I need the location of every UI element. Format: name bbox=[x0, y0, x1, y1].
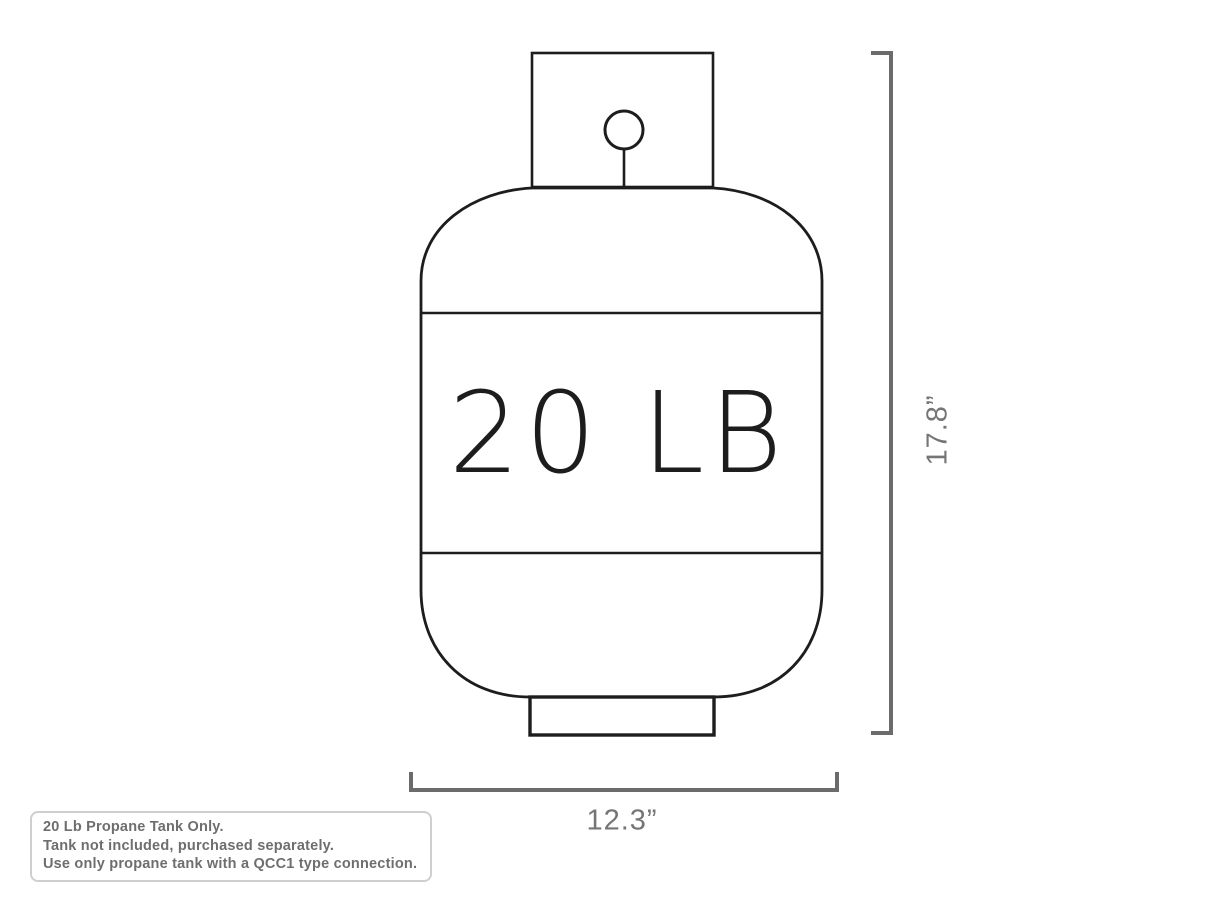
width-dimension-label: 12.3” bbox=[586, 805, 657, 838]
height-dimension-bracket bbox=[871, 53, 891, 733]
tank-base-foot bbox=[530, 697, 714, 735]
tank-capacity-label: 20 LB bbox=[449, 378, 788, 490]
diagram-canvas: 20 LB 17.8” 12.3” 20 Lb Propane Tank Onl… bbox=[0, 0, 1214, 911]
note-line-2: Tank not included, purchased separately. bbox=[43, 837, 419, 856]
tank-collar bbox=[532, 53, 713, 187]
disclaimer-note-box: 20 Lb Propane Tank Only. Tank not includ… bbox=[30, 811, 432, 882]
valve-circle bbox=[605, 111, 643, 149]
note-line-3: Use only propane tank with a QCC1 type c… bbox=[43, 855, 419, 874]
height-dimension-label: 17.8” bbox=[922, 394, 955, 465]
width-dimension-bracket bbox=[411, 772, 837, 790]
note-line-1: 20 Lb Propane Tank Only. bbox=[43, 818, 419, 837]
